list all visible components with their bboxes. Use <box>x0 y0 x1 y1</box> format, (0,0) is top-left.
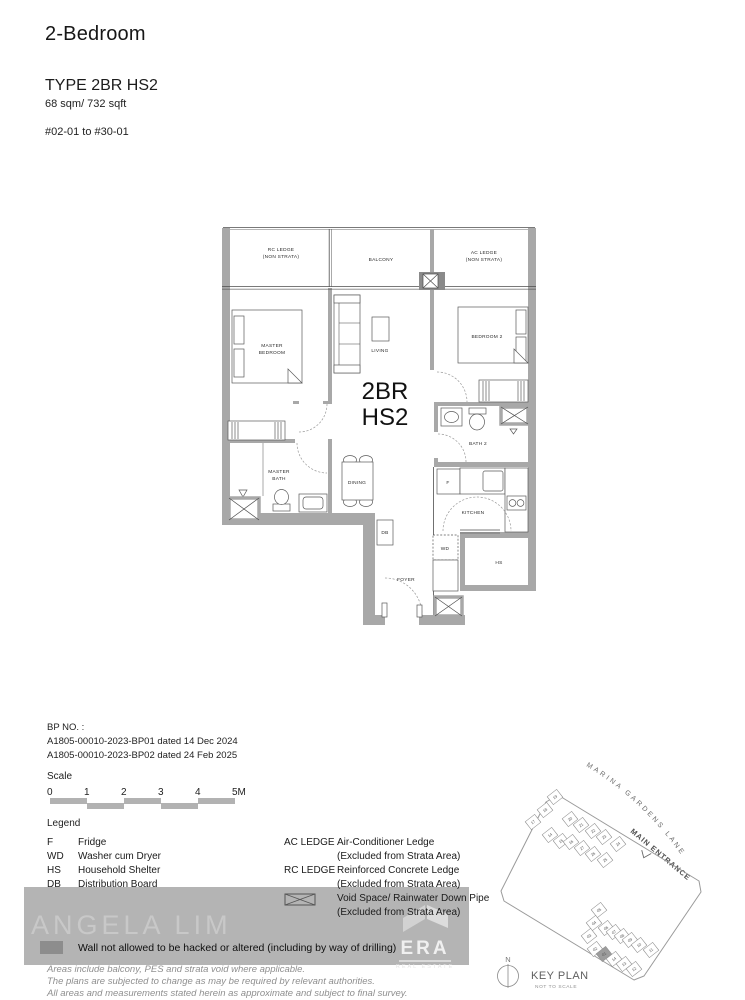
svg-text:BEDROOM: BEDROOM <box>259 350 286 356</box>
legend-item: AC LEDGEAir-Conditioner Ledge <box>284 836 434 850</box>
disclaimer-line: All areas and measurements stated herein… <box>47 988 408 1000</box>
bedroom2-wardrobe <box>479 380 528 402</box>
bp-label: BP NO. : <box>47 721 238 735</box>
svg-text:N: N <box>505 955 510 964</box>
label-fridge: F <box>446 480 449 486</box>
legend-item: DBDistribution Board <box>47 878 157 892</box>
stack-boxes: 1918172021222324141516272625050403060708… <box>525 789 659 976</box>
watermark-name: ANGELA LIM <box>31 910 232 941</box>
label-master-bedroom: MASTER <box>261 343 283 349</box>
north-compass-icon: N <box>498 955 519 988</box>
void-box-left <box>229 498 259 520</box>
kitchen-fixtures <box>437 468 528 533</box>
bp-line-2: A1805-00010-2023-BP02 dated 24 Feb 2025 <box>47 749 238 763</box>
legend-item: (Excluded from Strata Area) <box>284 878 460 892</box>
bath2-fixtures <box>441 408 486 430</box>
master-wardrobe <box>228 421 285 440</box>
label-foyer: FOYER <box>397 577 415 583</box>
legend-title: Legend <box>47 818 80 829</box>
unit-range: #02-01 to #30-01 <box>45 126 129 138</box>
wall-left <box>222 228 230 525</box>
tv-console <box>372 317 389 341</box>
label-balcony: BALCONY <box>369 257 394 263</box>
unit-type-label-line1: 2BR <box>362 378 409 405</box>
label-bedroom2: BEDROOM 2 <box>471 334 502 340</box>
road-label: MARINA GARDENS LANE <box>585 762 686 858</box>
scale-bar <box>50 798 235 809</box>
legend-item: HSHousehold Shelter <box>47 864 160 878</box>
unit-area: 68 sqm/ 732 sqft <box>45 98 126 110</box>
key-plan: MARINA GARDENS LANE MAIN ENTRANCE 191817… <box>478 752 745 1000</box>
label-hs: HS <box>495 560 502 566</box>
label-master-bath: MASTER <box>268 469 290 475</box>
key-plan-subtitle: NOT TO SCALE <box>535 984 577 990</box>
bp-number-block: BP NO. : A1805-00010-2023-BP01 dated 14 … <box>47 721 238 763</box>
label-rc-ledge: RC LEDGE <box>268 247 295 253</box>
bp-line-1: A1805-00010-2023-BP01 dated 14 Dec 2024 <box>47 735 238 749</box>
unit-type-label-line2: HS2 <box>362 404 409 431</box>
keyplan-stack: 03 <box>581 928 597 943</box>
wall-note: Wall not allowed to be hacked or altered… <box>78 942 396 954</box>
disclaimer-line: Areas include balcony, PES and strata vo… <box>47 964 305 976</box>
wall-foyer-left <box>363 525 375 625</box>
label-kitchen: KITCHEN <box>462 510 485 516</box>
legend-item: WDWasher cum Dryer <box>47 850 161 864</box>
era-divider <box>399 960 451 962</box>
floorplan-page: 2-Bedroom TYPE 2BR HS2 68 sqm/ 732 sqft … <box>0 0 745 1000</box>
keyplan-stack: 05 <box>591 902 607 917</box>
legend-item-wall: Wall not allowed to be hacked or altered… <box>40 941 396 954</box>
label-living: LIVING <box>371 348 388 354</box>
label-dining: DINING <box>348 480 366 486</box>
keyplan-stack: 24 <box>610 836 626 851</box>
era-tagline: REAL ESTATE <box>395 964 455 970</box>
legend-item: FFridge <box>47 836 106 850</box>
legend-item: (Excluded from Strata Area) <box>284 850 460 864</box>
era-name: ERA <box>395 939 455 959</box>
sofa <box>334 295 360 373</box>
void-box-bath2 <box>501 407 528 434</box>
unit-type-title: TYPE 2BR HS2 <box>45 77 158 95</box>
svg-text:BATH: BATH <box>272 476 286 482</box>
floor-plan: RC LEDGE (NON STRATA) BALCONY AC LEDGE (… <box>215 210 545 640</box>
label-db: DB <box>381 530 388 536</box>
entrance-door <box>382 603 387 617</box>
key-plan-title: KEY PLAN <box>531 970 589 982</box>
label-wd: WD <box>441 546 450 552</box>
label-ac-ledge: AC LEDGE <box>471 250 497 256</box>
void-box-foyer <box>435 597 462 616</box>
disclaimer-line: The plans are subjected to change as may… <box>47 976 375 988</box>
label-bath2: BATH 2 <box>469 441 487 447</box>
scale-label: Scale <box>47 771 72 782</box>
page-title: 2-Bedroom <box>45 23 146 46</box>
svg-text:(NON STRATA): (NON STRATA) <box>263 254 300 260</box>
legend-item: RC LEDGEReinforced Concrete Ledge <box>284 864 459 878</box>
svg-text:(NON STRATA): (NON STRATA) <box>466 257 503 263</box>
legend-item: (Excluded from Strata Area) <box>284 906 460 920</box>
wall-swatch <box>40 941 63 954</box>
keyplan-stack: 19 <box>547 789 563 804</box>
